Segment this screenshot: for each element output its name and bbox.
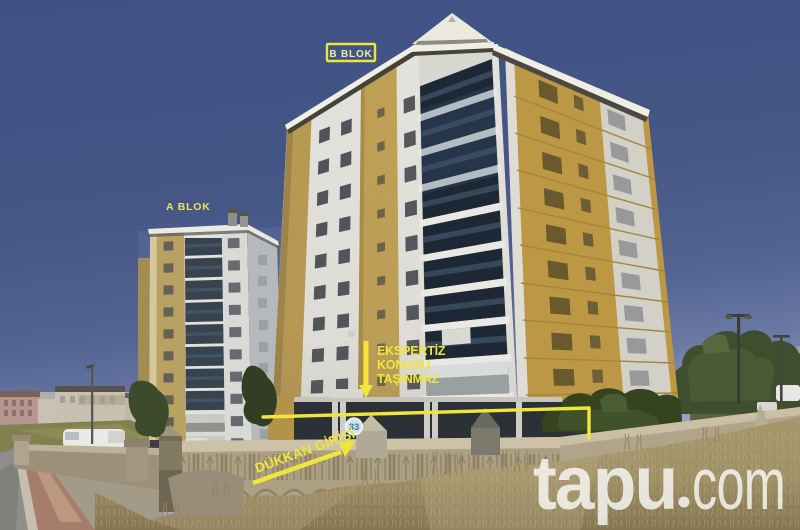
- svg-text:B BLOK: B BLOK: [329, 49, 372, 60]
- svg-text:A BLOK: A BLOK: [166, 201, 211, 213]
- svg-text:TAŞINMAZ: TAŞINMAZ: [377, 372, 440, 386]
- svg-text:tapu: tapu: [533, 440, 676, 526]
- svg-text:KONUSU: KONUSU: [377, 358, 430, 372]
- svg-text:com: com: [692, 444, 785, 525]
- svg-text:EKSPERTİZ: EKSPERTİZ: [377, 343, 446, 358]
